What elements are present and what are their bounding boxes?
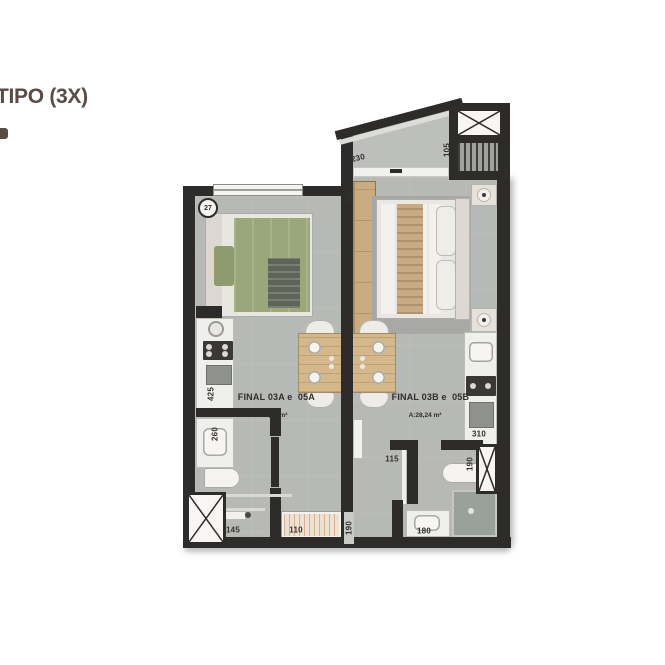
shower-drain-icon: [468, 508, 474, 514]
unit-b-area: A:28,24 m²: [357, 412, 493, 419]
dim-shower-a: 110: [289, 526, 303, 535]
stairs-icon: [456, 141, 500, 173]
toilet-a: [204, 468, 240, 488]
service-shaft-icon: [476, 444, 498, 494]
dim-vanity-b: 180: [417, 527, 431, 536]
dim-balcony-depth: 105: [443, 143, 452, 157]
floor-plan: TIPO (3X): [0, 0, 665, 665]
door-handle-icon: [245, 512, 251, 518]
unit-a-name: FINAL 03A e 05A: [238, 392, 315, 402]
glass-cup: [360, 364, 365, 369]
unit-b-name: FINAL 03B e 05B: [392, 392, 470, 402]
unit-a-area: A:21,58 m²: [203, 412, 339, 419]
wall: [392, 500, 403, 537]
dim-kitchen-a: 425: [207, 387, 216, 401]
pillow-green: [214, 246, 234, 286]
window: [213, 184, 303, 196]
sliding-door-track: [402, 450, 406, 504]
dim-kitchen-b: 310: [472, 430, 486, 439]
dim-bath-a: 260: [211, 427, 220, 441]
service-shaft-icon: [186, 492, 226, 545]
throw-blanket: [268, 258, 300, 308]
dim-corridor: 190: [345, 521, 354, 535]
bed-runner: [397, 204, 423, 314]
pillow: [436, 260, 456, 310]
dim-toilet-b: 190: [466, 457, 475, 471]
cropped-glyph: [0, 128, 8, 139]
table-lamp-icon: [477, 188, 491, 202]
stove-a: [203, 341, 233, 360]
page-title: TIPO (3X): [0, 85, 88, 109]
wall: [196, 306, 222, 318]
door-leaf: [271, 437, 279, 487]
elevator-icon: [456, 109, 502, 137]
wall: [497, 176, 510, 548]
headboard-b: [455, 198, 470, 320]
wall: [390, 440, 418, 450]
sink-a: [208, 321, 224, 337]
glass-cup: [329, 356, 334, 361]
plate: [308, 341, 321, 354]
sliding-door: [407, 450, 418, 504]
pillow: [436, 206, 456, 256]
door-handle-icon: [390, 169, 402, 173]
sink-b: [469, 342, 493, 362]
marker-27: 27: [198, 198, 218, 218]
shower-b: [452, 490, 497, 537]
plate: [372, 341, 385, 354]
dim-entry-a: 145: [226, 526, 240, 535]
dim-hall-b: 115: [385, 455, 399, 464]
unit-a-label: FINAL 03A e 05A A:21,58 m²: [203, 382, 339, 439]
table-lamp-icon: [477, 313, 491, 327]
glass-cup: [329, 364, 334, 369]
dim-wardrobe: 555: [346, 189, 355, 203]
glass-cup: [360, 356, 365, 361]
